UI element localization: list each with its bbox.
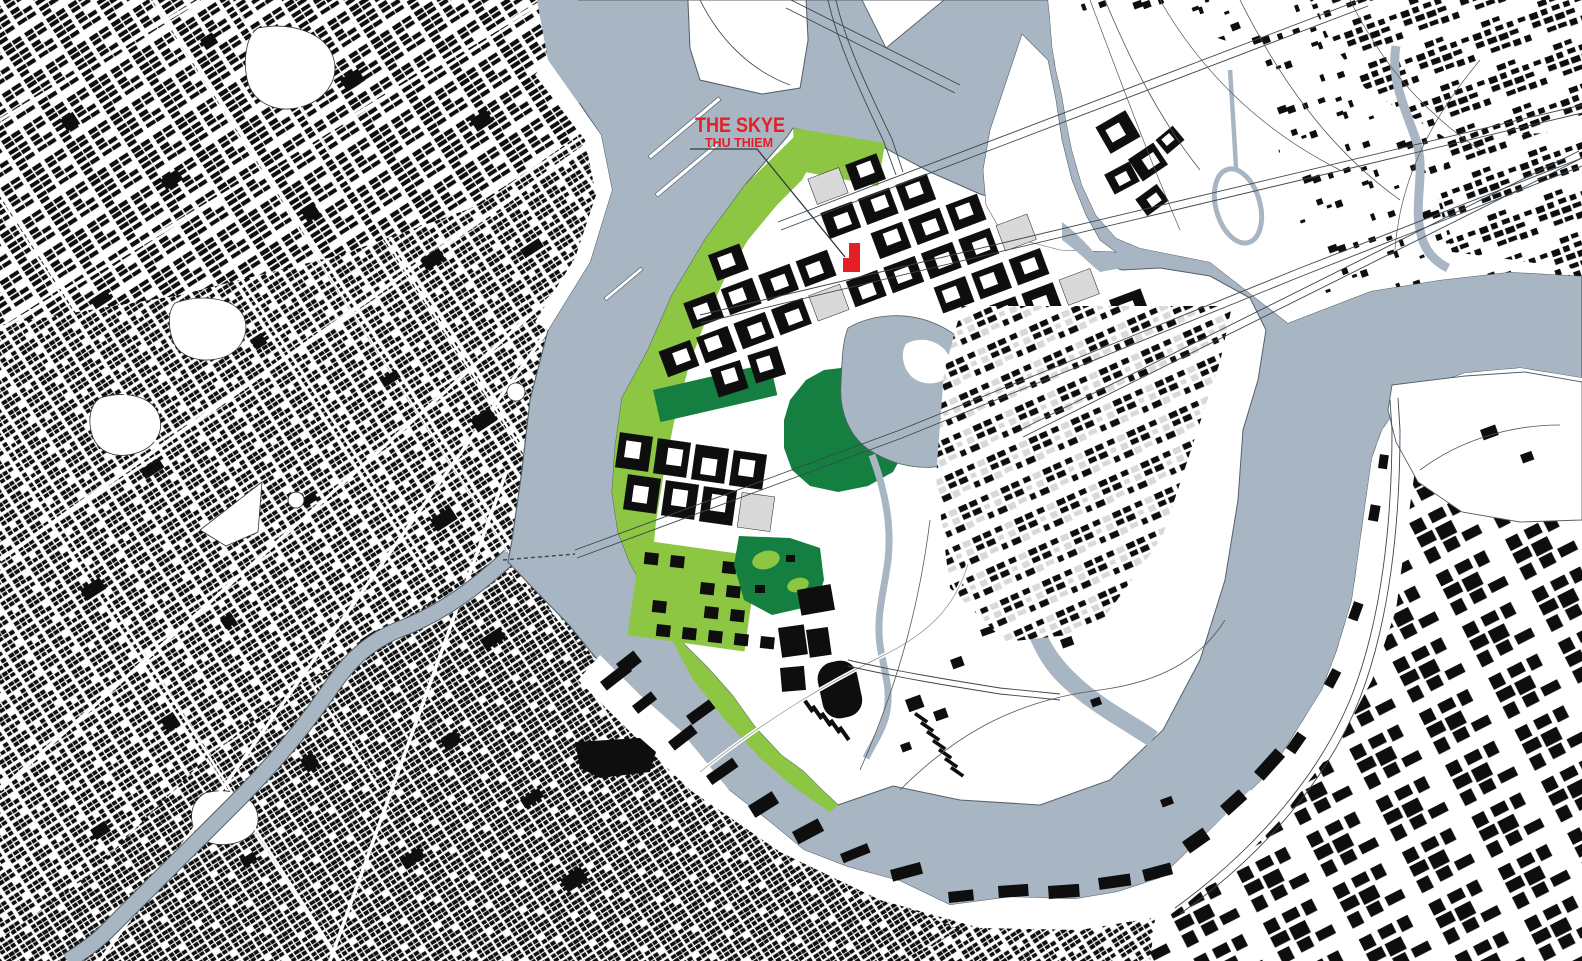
svg-text:THE SKYE: THE SKYE <box>695 113 785 137</box>
svg-text:THU THIEM: THU THIEM <box>705 136 773 150</box>
